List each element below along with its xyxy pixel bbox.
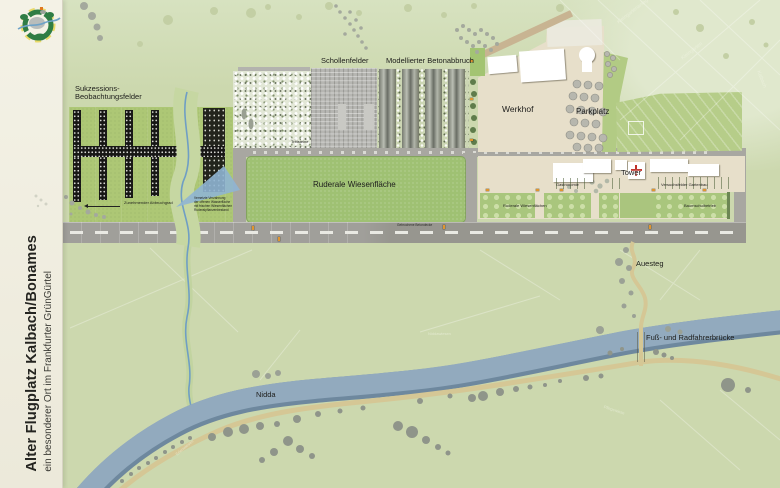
label-bruecke: Fuß- und Radfahrerbrücke (646, 334, 734, 342)
map-overlay (0, 0, 780, 488)
keyhole-building-stem (582, 57, 592, 72)
label-werkhof: Werkhof (502, 105, 534, 114)
pale-trees (137, 2, 769, 59)
orange-marker (536, 189, 539, 191)
runway-marker (278, 237, 280, 241)
note-gartenbau: Versuchsfelder Gartenbau (661, 183, 707, 188)
orange-marker (560, 189, 563, 191)
plant-rows (612, 178, 626, 189)
orange-marker (470, 139, 473, 141)
sidebar-speckles (0, 0, 62, 488)
label-ruderale: Ruderale Wiesenfläche (313, 181, 396, 190)
note-gastronomie: Gastronomie (556, 183, 579, 188)
orange-marker (652, 189, 655, 191)
werkhof-building (487, 55, 517, 74)
note-baumschule: Baumschulbetrieb (684, 204, 716, 209)
note-wiesenflaechen: Ruderale Wiesenflächen (503, 204, 547, 209)
label-schollenfelder: Schollenfelder (321, 57, 369, 65)
label-parkplatz: Parkplatz (576, 108, 609, 117)
dot-trees (60, 2, 500, 219)
site-plan-poster: Gebrochene Betondecke (0, 0, 780, 488)
label-nidda: Nidda (256, 391, 276, 399)
hangar-building (583, 159, 611, 173)
label-niddawiesen: Niddawiesen (428, 331, 451, 336)
label-sukzession: Sukzessions- Beobachtungsfelder (75, 85, 142, 102)
orange-marker (703, 189, 706, 191)
label-betonabbruch: Modellierter Betonabbruch (386, 57, 474, 65)
note-trittsteine: Trittsteine (291, 140, 308, 145)
note-abbruchgrad: Zunehmender Abbruchgrad (124, 201, 173, 206)
note-stream: Vernetzte Verzahnung der offenen Wasserf… (194, 197, 242, 212)
oval-trees (242, 109, 254, 130)
orange-marker (486, 189, 489, 191)
runway-marker (443, 225, 445, 229)
kalbach-stream (181, 90, 192, 412)
runway-marker (252, 226, 254, 230)
hedge-trees (470, 79, 477, 145)
hangar-building (688, 164, 719, 176)
arrow-left-icon (88, 206, 120, 207)
hangar-building (650, 159, 688, 172)
orange-marker (470, 98, 473, 100)
label-tower: Tower (621, 169, 641, 177)
label-auesteg: Auesteg (636, 260, 664, 268)
werkhof-hall (519, 48, 566, 82)
bank-trees (252, 247, 683, 379)
title-sidebar: Alter Flugplatz Kalbach/Bonames ein beso… (0, 0, 63, 488)
runway-marker (649, 225, 651, 229)
